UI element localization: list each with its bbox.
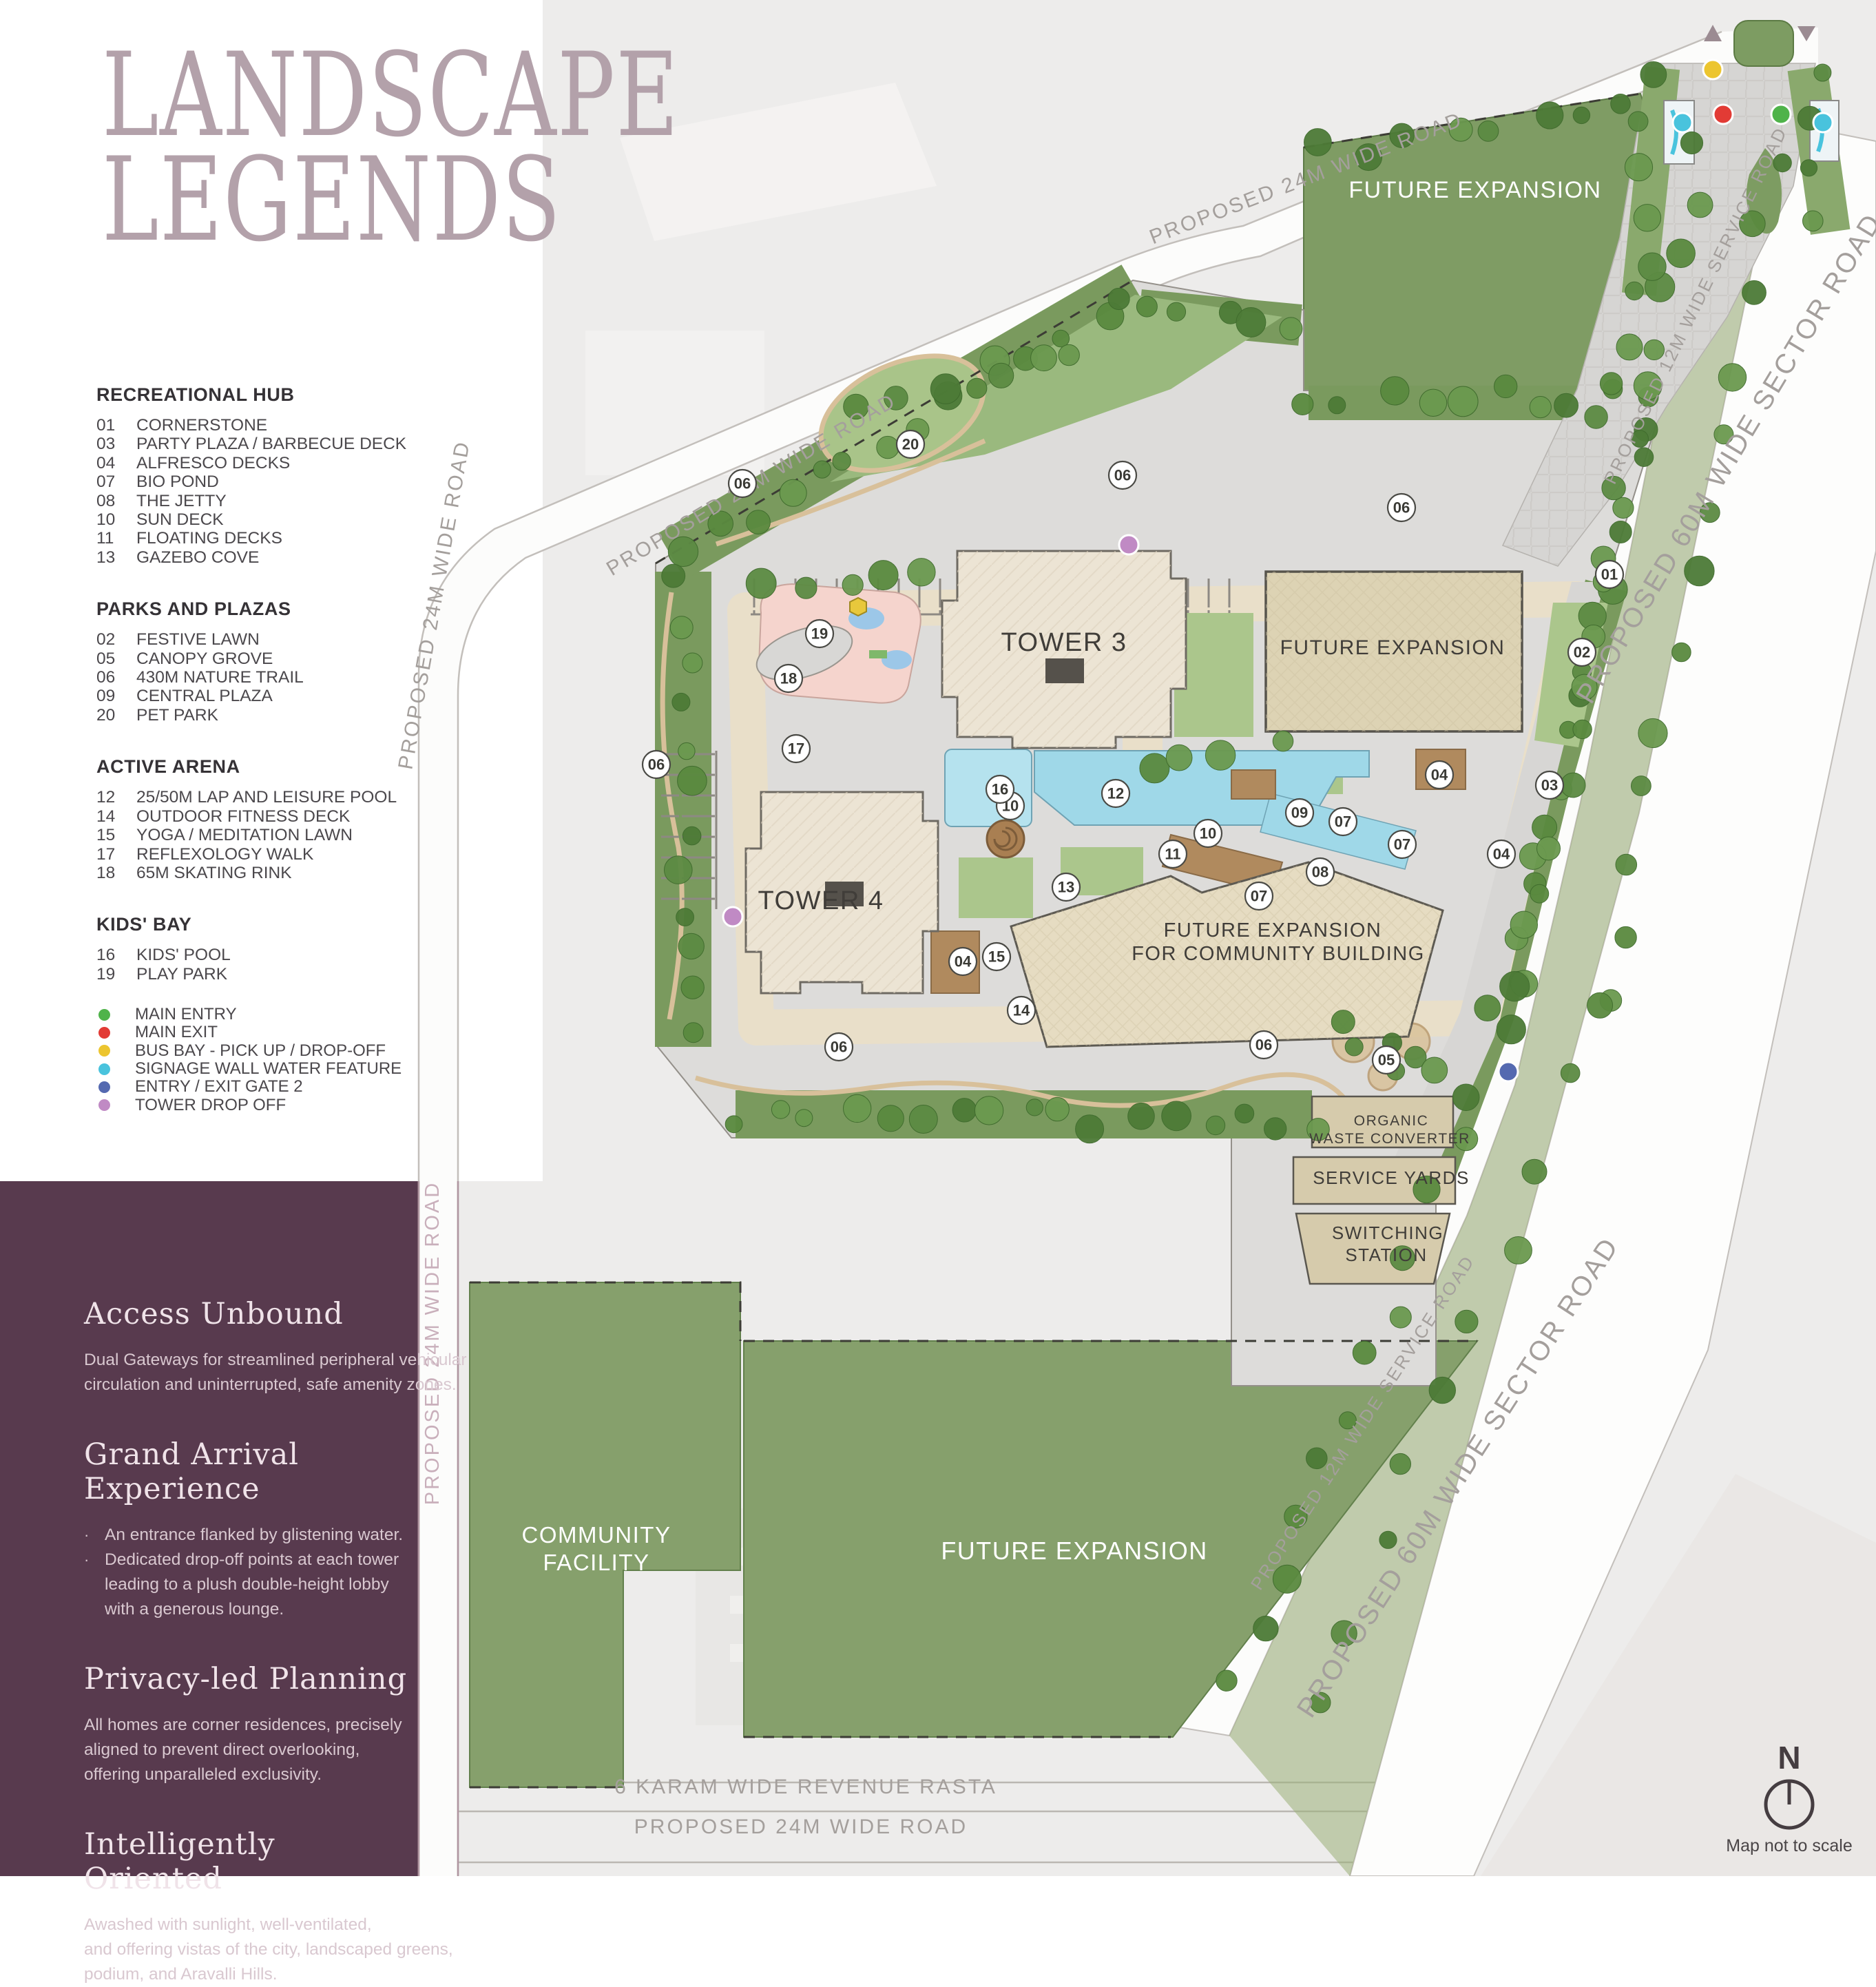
legend-item-number: 13 [96,548,136,567]
map-marker-number: 02 [1574,644,1590,661]
tree-icon [1628,112,1648,132]
legend-item: 1225/50M LAP AND LEISURE POOL [96,788,510,807]
map-marker[interactable]: 06 [1109,461,1136,489]
tree-icon [975,1096,1003,1125]
tree-icon [1687,192,1713,218]
entry-legend-label: TOWER DROP OFF [135,1096,286,1115]
tree-icon [1632,776,1651,796]
entry-legend-dot-icon [98,1063,110,1075]
map-marker-number: 08 [1312,864,1328,881]
tree-icon [676,908,694,926]
story-bullet: ·Dedicated drop-off points at each tower… [84,1548,408,1622]
map-gate-dot[interactable] [1813,113,1833,132]
entry-legend-item: MAIN ENTRY [98,1006,402,1023]
map-marker-number: 09 [1291,804,1308,822]
story-bullet-line: Dedicated drop-off points at each tower [105,1548,399,1572]
map-marker[interactable]: 09 [1286,799,1313,826]
page: PROPOSED 24M WIDE ROADPROPOSED 24M WIDE … [0,0,1876,1876]
tree-icon [1236,308,1266,337]
tree-icon [1532,815,1557,840]
tree-icon [1634,448,1654,467]
tree-icon [1814,64,1831,81]
map-marker[interactable]: 08 [1306,858,1334,886]
story-text-line: and offering vistas of the city, landsca… [84,1937,408,1962]
page-title-line2: LEGENDS [102,147,680,252]
legend-item: 04ALFRESCO DECKS [96,454,510,472]
tree-icon [683,1023,703,1043]
legend-item: 15YOGA / MEDITATION LAWN [96,826,510,844]
tree-icon [1421,1057,1448,1083]
tree-icon [1419,389,1446,416]
tree-icon [1429,1377,1455,1403]
tree-icon [1076,1115,1104,1143]
tree-icon [909,1105,937,1134]
tree-icon [1253,1616,1278,1641]
legend-item-number: 14 [96,807,136,826]
map-marker[interactable]: 18 [775,665,802,692]
amenity-legend: RECREATIONAL HUB01CORNERSTONE03PARTY PLA… [96,384,510,984]
tree-icon [1452,1084,1479,1111]
legend-item: 16KIDS' POOL [96,946,510,964]
map-marker-number: 06 [648,756,665,773]
legend-item: 09CENTRAL PLAZA [96,687,510,705]
area-label: SWITCHING [1332,1223,1444,1243]
tree-icon [1167,302,1185,321]
tree-icon [1494,375,1517,397]
area-label: FACILITY [543,1550,649,1575]
tree-icon [868,561,898,590]
map-marker-number: 05 [1378,1052,1395,1069]
tree-icon [1667,239,1696,268]
map-marker-number: 07 [1394,836,1410,853]
story-section: Grand Arrival Experience·An entrance fla… [84,1437,408,1622]
map-marker[interactable]: 14 [1008,997,1035,1024]
map-gate-dot[interactable] [1673,113,1692,132]
tree-icon [1497,1015,1525,1044]
tree-icon [930,374,961,404]
tree-icon [1615,926,1636,948]
legend-item-number: 10 [96,510,136,529]
tree-icon [1500,972,1530,1001]
tree-icon [1536,102,1563,129]
tree-icon [1585,406,1607,428]
entry-legend-item: TOWER DROP OFF [98,1096,402,1114]
entry-legend-item: SIGNAGE WALL WATER FEATURE [98,1060,402,1078]
entry-legend-dot-icon [98,1099,110,1111]
tree-icon [1561,773,1585,798]
map-marker-number: 19 [811,625,828,643]
tree-icon [1331,1010,1355,1034]
legend-item-label: GAZEBO COVE [136,548,259,567]
map-gate-dot[interactable] [723,907,742,926]
tree-icon [1353,1341,1376,1364]
tree-icon [1166,745,1192,771]
legend-item-number: 02 [96,630,136,649]
legend-item-label: YOGA / MEDITATION LAWN [136,826,353,844]
story-section-heading: Grand Arrival Experience [84,1437,408,1506]
map-marker-number: 01 [1601,566,1618,583]
tree-icon [1587,992,1613,1018]
map-marker[interactable]: 06 [729,470,756,497]
entry-legend-item: BUS BAY - PICK UP / DROP-OFF [98,1042,402,1060]
legend-item-label: 25/50M LAP AND LEISURE POOL [136,788,397,807]
area-label: FUTURE EXPANSION [1164,919,1382,942]
tree-icon [1634,205,1660,231]
map-marker-number: 06 [831,1039,847,1056]
tree-icon [1052,330,1070,347]
entry-legend-label: MAIN EXIT [135,1023,218,1042]
legend-item: 03PARTY PLAZA / BARBECUE DECK [96,435,510,453]
area-label: SERVICE YARDS [1313,1167,1470,1188]
legend-item-label: CANOPY GROVE [136,649,273,668]
legend-item-number: 07 [96,472,136,491]
tree-icon [1537,837,1561,860]
sun-deck-spiral [987,820,1024,857]
story-text-line: aligned to prevent direct overlooking, [84,1738,408,1762]
area-label: FUTURE EXPANSION [941,1537,1207,1565]
legend-item-number: 17 [96,845,136,864]
map-marker-number: 03 [1541,777,1558,794]
legend-item: 17REFLEXOLOGY WALK [96,845,510,864]
tree-icon [952,1099,976,1122]
tree-icon [725,1116,742,1133]
legend-item-label: CENTRAL PLAZA [136,687,273,705]
road-label: PROPOSED 24M WIDE ROAD [421,1181,444,1505]
road-label: PROPOSED 24M WIDE ROAD [634,1816,968,1838]
legend-item-label: FESTIVE LAWN [136,630,260,649]
legend-item-number: 20 [96,706,136,725]
legend-item: 11FLOATING DECKS [96,529,510,548]
tree-icon [746,568,776,599]
map-marker-number: 06 [1114,467,1131,484]
story-text-line: Dual Gateways for streamlined peripheral… [84,1348,408,1373]
tree-icon [1264,1118,1286,1140]
tree-icon [1280,318,1302,340]
tree-icon [682,653,702,673]
legend-section-heading: ACTIVE ARENA [96,756,510,778]
tree-icon [1573,720,1592,738]
map-marker[interactable]: 01 [1596,561,1623,588]
legend-item: 14OUTDOOR FITNESS DECK [96,807,510,826]
map-marker-number: 04 [955,953,972,970]
map-gate-dot[interactable] [1499,1062,1518,1081]
tree-icon [1718,364,1746,391]
tree-icon [842,574,863,595]
map-marker-number: 14 [1013,1002,1030,1019]
story-text-line: Awashed with sunlight, well-ventilated, [84,1913,408,1937]
tree-icon [1381,377,1409,405]
tree-icon [1108,288,1129,309]
tree-icon [844,1094,871,1122]
tree-icon [747,510,771,534]
tree-icon [1059,344,1079,365]
map-gate-dot[interactable] [1771,105,1791,124]
tree-icon [813,461,831,478]
story-bullet-line: with a generous lounge. [105,1597,399,1622]
map-marker[interactable]: 17 [782,735,810,762]
tree-icon [1522,1159,1547,1184]
tree-icon [877,436,899,458]
map-marker-number: 07 [1251,888,1267,905]
map-marker[interactable]: 07 [1245,882,1273,910]
tree-icon [1235,1104,1254,1123]
map-marker-number: 07 [1335,813,1351,831]
tree-icon [967,378,987,398]
map-marker-number: 12 [1107,785,1124,802]
map-gate-dot[interactable] [1713,105,1733,124]
tree-icon [1206,1116,1224,1134]
tree-icon [1640,62,1667,88]
map-marker[interactable]: 06 [1388,494,1415,521]
map-marker[interactable]: 04 [1426,761,1453,789]
legend-item-label: BIO POND [136,472,219,491]
entry-legend-label: MAIN ENTRY [135,1005,237,1024]
tree-icon [1390,1453,1410,1474]
tree-icon [795,577,817,599]
area-label: FOR COMMUNITY BUILDING [1132,943,1425,965]
story-bullet: ·An entrance flanked by glistening water… [84,1523,408,1548]
map-marker[interactable]: 06 [1250,1031,1278,1059]
tree-icon [877,1105,904,1132]
legend-section: PARKS AND PLAZAS02FESTIVE LAWN05CANOPY G… [96,599,510,725]
map-marker-number: 06 [734,475,751,492]
legend-section: ACTIVE ARENA1225/50M LAP AND LEISURE POO… [96,756,510,882]
map-marker[interactable]: 13 [1052,873,1080,901]
map-marker[interactable]: 16 [986,776,1014,803]
map-marker[interactable]: 04 [949,948,977,975]
entry-legend-dot-icon [98,1027,110,1039]
entry-legend-label: BUS BAY - PICK UP / DROP-OFF [135,1041,386,1061]
map-marker[interactable]: 05 [1373,1046,1400,1074]
tree-icon [989,363,1014,388]
tree-icon [1128,1103,1155,1130]
legend-item-label: ALFRESCO DECKS [136,454,290,472]
tree-icon [662,564,685,587]
map-marker-number: 15 [988,948,1005,966]
legend-item-label: 65M SKATING RINK [136,864,292,882]
story-bullet-line: An entrance flanked by glistening water. [105,1523,403,1548]
legend-item-number: 03 [96,435,136,453]
legend-item-label: PET PARK [136,706,218,725]
legend-item-number: 08 [96,492,136,510]
map-marker[interactable]: 19 [806,620,833,647]
tree-icon [1379,1531,1397,1548]
map-marker-number: 04 [1493,846,1510,863]
gate-median-green [1734,21,1793,66]
entry-exit-legend: MAIN ENTRYMAIN EXITBUS BAY - PICK UP / D… [98,1006,402,1114]
legend-item: 01CORNERSTONE [96,416,510,435]
tree-icon [1530,397,1551,418]
legend-item-label: CORNERSTONE [136,416,267,435]
legend-item-number: 05 [96,649,136,668]
tree-icon [678,742,695,759]
legend-item-number: 15 [96,826,136,844]
area-label: FUTURE EXPANSION [1280,636,1505,659]
play-park [750,584,921,703]
story-section: Intelligently OrientedAwashed with sunli… [84,1827,408,1987]
legend-item: 05CANOPY GROVE [96,649,510,668]
tree-icon [678,933,704,959]
tree-icon [1609,521,1632,543]
tree-icon [682,826,701,845]
tree-icon [1505,1237,1532,1265]
tree-icon [1026,1099,1043,1116]
map-marker[interactable]: 12 [1102,780,1129,807]
map-marker-number: 16 [992,781,1008,798]
tree-icon [795,1110,813,1127]
entry-legend-label: ENTRY / EXIT GATE 2 [135,1077,303,1096]
tree-icon [681,976,704,999]
legend-item-label: PLAY PARK [136,965,227,984]
legend-item-number: 11 [96,529,136,548]
story-bullet-line: leading to a plush double-height lobby [105,1572,399,1597]
story-text-line: All homes are corner residences, precise… [84,1713,408,1738]
legend-section: RECREATIONAL HUB01CORNERSTONE03PARTY PLA… [96,384,510,567]
tree-icon [1685,556,1714,585]
legend-item-number: 06 [96,668,136,687]
map-marker[interactable]: 02 [1568,638,1596,666]
map-marker[interactable]: 07 [1388,831,1416,858]
story-bullet-lines: An entrance flanked by glistening water. [105,1523,403,1548]
legend-item-label: SUN DECK [136,510,224,529]
tree-icon [1045,1097,1069,1121]
area-label: TOWER 3 [1001,628,1127,657]
map-marker-number: 17 [788,740,804,758]
map-marker[interactable]: 06 [825,1033,853,1061]
tree-icon [1474,995,1501,1021]
map-marker-number: 06 [1255,1037,1272,1054]
story-section: Privacy-led PlanningAll homes are corner… [84,1662,408,1787]
legend-item-label: 430M NATURE TRAIL [136,668,304,687]
legend-item-number: 09 [96,687,136,705]
legend-section-heading: KIDS' BAY [96,914,510,935]
map-marker-number: 18 [780,670,797,687]
tree-icon [1611,94,1631,114]
legend-item: 19PLAY PARK [96,965,510,984]
legend-item: 08THE JETTY [96,492,510,510]
road-label: 6 KARAM WIDE REVENUE RASTA [614,1776,997,1798]
map-marker[interactable]: 06 [643,751,670,778]
tree-icon [1304,129,1332,156]
tree-icon [1573,107,1590,123]
tree-icon [908,559,935,586]
tree-icon [1448,386,1478,417]
legend-item-number: 04 [96,454,136,472]
legend-section-heading: PARKS AND PLAZAS [96,599,510,620]
tree-icon [1638,718,1667,747]
tree-icon [1625,154,1652,181]
map-marker-number: 04 [1431,767,1448,784]
tree-icon [1345,1038,1363,1056]
tree-icon [1510,911,1537,938]
legend-item-label: THE JETTY [136,492,227,510]
area-label: FUTURE EXPANSION [1348,177,1601,203]
tree-icon [1600,373,1622,395]
legend-item-label: OUTDOOR FITNESS DECK [136,807,350,826]
legend-section: KIDS' BAY16KIDS' POOL19PLAY PARK [96,914,510,984]
entry-legend-dot-icon [98,1081,110,1093]
legend-section-heading: RECREATIONAL HUB [96,384,510,406]
legend-item-label: REFLEXOLOGY WALK [136,845,313,864]
map-marker[interactable]: 07 [1329,808,1357,835]
tree-icon [1455,1310,1478,1333]
tree-icon [672,693,690,711]
area-label: COMMUNITY [522,1522,671,1548]
tree-icon [1478,121,1499,142]
tree-icon [780,479,806,506]
map-marker[interactable]: 04 [1488,840,1515,868]
tree-icon [1616,334,1643,360]
tree-icon [771,1101,789,1119]
tree-icon [1205,740,1235,770]
map-marker[interactable]: 11 [1159,840,1187,868]
legend-item: 07BIO POND [96,472,510,491]
map-marker[interactable]: 10 [1194,820,1222,847]
tree-icon [1554,393,1578,417]
story-bullet-lines: Dedicated drop-off points at each towerl… [105,1548,399,1622]
area-label: ORGANIC [1354,1113,1429,1129]
page-title: LANDSCAPE LEGENDS [102,43,680,252]
tree-icon [1140,753,1169,783]
map-marker-number: 10 [1200,825,1216,842]
map-marker[interactable]: 15 [983,943,1010,970]
story-panel: Access UnboundDual Gateways for streamli… [0,1181,408,1987]
legend-item-number: 16 [96,946,136,964]
legend-item: 02FESTIVE LAWN [96,630,510,649]
tree-icon [1136,296,1157,317]
tree-icon [1800,160,1817,176]
tree-icon [1742,280,1766,304]
map-marker[interactable]: 20 [897,430,924,458]
tree-icon [665,856,693,884]
map-marker[interactable]: 03 [1536,771,1563,799]
tree-icon [1803,211,1824,231]
tree-icon [833,452,851,470]
legend-item-number: 19 [96,965,136,984]
map-gate-dot[interactable] [1119,535,1138,554]
area-label: STATION [1345,1245,1427,1265]
map-marker-number: 11 [1165,846,1180,863]
tree-icon [1616,854,1637,875]
tree-icon [1561,1063,1580,1083]
map-gate-dot[interactable] [1703,60,1722,79]
legend-item-number: 18 [96,864,136,882]
map-marker-number: 20 [902,436,919,453]
story-text-line: podium, and Aravalli Hills. [84,1962,408,1987]
entry-legend-label: SIGNAGE WALL WATER FEATURE [135,1059,402,1079]
tree-icon [1216,1670,1237,1691]
area-label: WASTE CONVERTER [1309,1131,1470,1147]
tree-icon [678,766,707,795]
entry-legend-item: ENTRY / EXIT GATE 2 [98,1078,402,1096]
tree-icon [1672,643,1691,662]
legend-item: 06430M NATURE TRAIL [96,668,510,687]
bullet-icon: · [84,1523,105,1548]
bullet-icon: · [84,1548,105,1622]
legend-item: 13GAZEBO COVE [96,548,510,567]
tree-icon [1613,497,1634,518]
compass-north-letter: N [1778,1740,1800,1776]
legend-item-label: PARTY PLAZA / BARBECUE DECK [136,435,406,453]
tree-icon [1328,397,1346,414]
story-section: Access UnboundDual Gateways for streamli… [84,1297,408,1397]
map-marker-number: 13 [1058,879,1074,896]
tree-icon [1625,282,1643,300]
story-section-heading: Access Unbound [84,1297,408,1331]
map-marker-number: 06 [1393,499,1410,517]
legend-item-number: 12 [96,788,136,807]
legend-item-label: FLOATING DECKS [136,529,282,548]
